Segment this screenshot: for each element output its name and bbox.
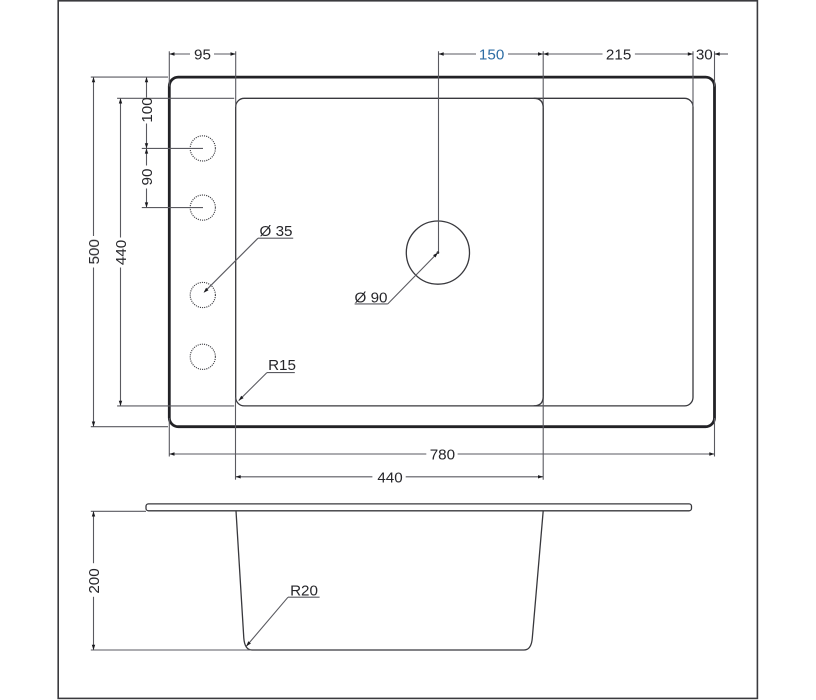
svg-text:30: 30 <box>696 46 713 63</box>
svg-text:95: 95 <box>194 46 211 63</box>
svg-text:440: 440 <box>113 240 130 265</box>
svg-text:780: 780 <box>430 446 455 463</box>
svg-text:200: 200 <box>86 568 103 593</box>
svg-text:90: 90 <box>139 169 156 186</box>
svg-text:215: 215 <box>606 46 631 63</box>
svg-text:150: 150 <box>479 46 504 63</box>
svg-text:500: 500 <box>86 239 103 264</box>
svg-text:R15: R15 <box>268 357 296 374</box>
svg-text:Ø 35: Ø 35 <box>260 223 293 240</box>
svg-text:440: 440 <box>377 469 402 486</box>
svg-text:100: 100 <box>139 97 156 122</box>
